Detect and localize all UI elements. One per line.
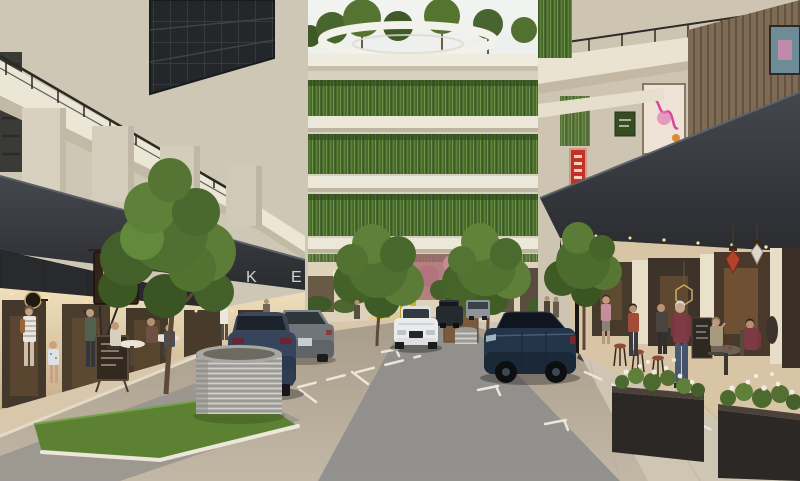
pedestrian	[354, 300, 360, 319]
decor-vase	[766, 316, 778, 344]
green-shop-sign	[615, 112, 635, 136]
roof-slab	[288, 54, 558, 66]
balcony-plant-drape	[538, 0, 572, 58]
rendering-canvas: K E N N Y Y L	[0, 0, 800, 481]
corrugated-planter	[193, 345, 285, 424]
street-rendering: K E N N Y Y L	[0, 0, 800, 481]
parked-suv-distant	[436, 300, 463, 328]
parked-van-distant	[466, 300, 490, 320]
watermark-letter: E	[291, 269, 303, 286]
roof-slab-shadow	[288, 66, 558, 71]
watermark-letter: K	[246, 269, 258, 286]
lit-display-window	[770, 26, 800, 74]
